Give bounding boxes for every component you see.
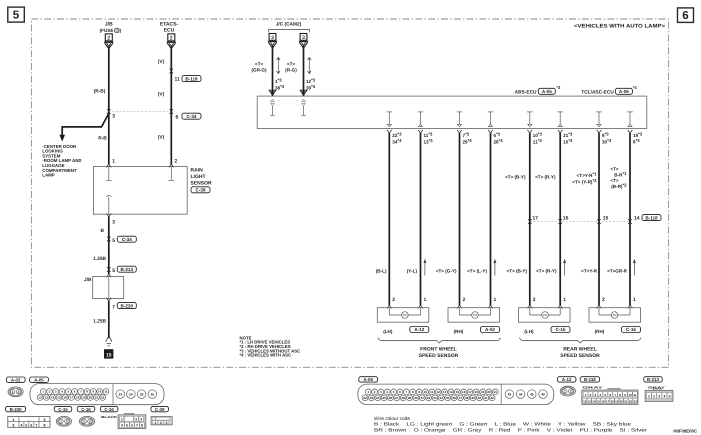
svg-text:BLACK: BLACK [101, 415, 118, 419]
svg-text:3: 3 [112, 114, 115, 120]
svg-text:H8F08E00C: H8F08E00C [673, 429, 697, 434]
svg-text:23: 23 [370, 396, 374, 400]
svg-text:35: 35 [446, 396, 450, 400]
svg-text:(V): (V) [158, 135, 165, 141]
svg-text:<T> (R-Y): <T> (R-Y) [535, 175, 556, 180]
svg-text:3: 3 [271, 35, 274, 41]
svg-text:C-16: C-16 [626, 327, 636, 332]
svg-text:13: 13 [443, 390, 447, 394]
svg-text:B-230: B-230 [121, 303, 134, 308]
svg-text:12: 12 [38, 396, 42, 400]
svg-text:1: 1 [494, 297, 497, 303]
svg-text:1: 1 [60, 420, 62, 424]
svg-text:2: 2 [89, 420, 91, 424]
svg-text:(LH): (LH) [383, 329, 393, 334]
svg-text:3: 3 [165, 421, 167, 425]
svg-text:10: 10 [628, 393, 632, 397]
svg-text:46: 46 [541, 392, 545, 396]
svg-text:19: 19 [481, 390, 485, 394]
svg-text:1: 1 [633, 297, 636, 303]
svg-text:21: 21 [95, 396, 99, 400]
svg-text:2: 2 [18, 390, 20, 394]
svg-text:SPEED SENSOR: SPEED SENSOR [560, 353, 600, 359]
svg-text:1.25B: 1.25B [93, 318, 106, 324]
svg-text:43: 43 [508, 392, 512, 396]
svg-text:<T> (R-Y): <T> (R-Y) [536, 268, 557, 273]
svg-text:LAMP: LAMP [42, 173, 55, 178]
svg-text:ABS-ECU: ABS-ECU [515, 90, 537, 96]
svg-text:1: 1 [112, 159, 115, 165]
svg-text:41: 41 [484, 396, 488, 400]
svg-text:(LH): (LH) [524, 329, 534, 334]
svg-text:19: 19 [82, 396, 86, 400]
svg-text:(R-B): (R-B) [94, 88, 106, 94]
svg-text:(V): (V) [158, 59, 165, 65]
svg-text:15: 15 [456, 390, 460, 394]
svg-text:A-12: A-12 [562, 377, 572, 382]
svg-text:18: 18 [76, 396, 80, 400]
svg-text:<T>: <T> [610, 167, 618, 172]
svg-text:8: 8 [44, 424, 46, 428]
svg-text:J/B: J/B [105, 21, 113, 27]
svg-text:4: 4 [663, 395, 665, 399]
svg-text:21: 21 [494, 390, 498, 394]
svg-text:6: 6 [682, 10, 688, 22]
svg-text:15: 15 [57, 396, 61, 400]
svg-text:1.25B: 1.25B [93, 256, 106, 262]
svg-text:13: 13 [115, 29, 119, 33]
svg-text:1: 1 [648, 395, 650, 399]
svg-text:15: 15 [603, 216, 609, 222]
svg-text:36: 36 [452, 396, 456, 400]
svg-text:<T>GR-R: <T>GR-R [607, 268, 628, 273]
svg-text:44: 44 [519, 392, 523, 396]
svg-text:B-213: B-213 [121, 267, 134, 272]
svg-text:1: 1 [83, 420, 85, 424]
svg-text:<T> (G-Y): <T> (G-Y) [436, 268, 457, 273]
svg-text:37: 37 [459, 396, 463, 400]
svg-text:42: 42 [491, 396, 495, 400]
svg-text:B : Black LG : Light green: B : Black LG : Light green G : Green L :… [374, 422, 631, 428]
svg-text:17: 17 [532, 216, 538, 222]
svg-text:<T>Y-R: <T>Y-R [581, 268, 598, 273]
svg-text:B-118: B-118 [584, 377, 596, 382]
svg-text:J/C (CAM2): J/C (CAM2) [276, 21, 302, 27]
svg-text:2: 2 [175, 159, 178, 165]
svg-text:(V): (V) [158, 91, 165, 97]
svg-text:14: 14 [449, 390, 453, 394]
svg-text:5: 5 [25, 424, 27, 428]
svg-text:2: 2 [66, 420, 68, 424]
svg-text:A-06: A-06 [363, 377, 373, 382]
svg-text:23: 23 [633, 400, 637, 404]
svg-text:19: 19 [615, 400, 619, 404]
svg-text:8: 8 [141, 424, 143, 428]
svg-text:38: 38 [465, 396, 469, 400]
svg-text:23: 23 [118, 392, 122, 396]
svg-text:6: 6 [30, 424, 32, 428]
svg-text:30: 30 [414, 396, 418, 400]
svg-text:18: 18 [611, 400, 615, 404]
svg-text:2: 2 [107, 35, 110, 41]
svg-text:24: 24 [129, 392, 133, 396]
svg-text:2: 2 [170, 35, 173, 41]
svg-text:20: 20 [487, 390, 491, 394]
svg-text:B-118: B-118 [645, 215, 658, 220]
svg-text:REAR WHEEL: REAR WHEEL [563, 346, 597, 352]
svg-text:2: 2 [44, 418, 46, 422]
svg-text:17: 17 [468, 390, 472, 394]
svg-text:Wire colour code: Wire colour code [374, 416, 410, 422]
svg-text:2: 2 [533, 297, 536, 303]
svg-text:C-34: C-34 [122, 237, 132, 242]
svg-text:(B-L): (B-L) [376, 268, 387, 273]
svg-text:B-213: B-213 [647, 377, 660, 382]
svg-text:(RH): (RH) [595, 329, 605, 334]
svg-text:27: 27 [395, 396, 399, 400]
svg-text:3: 3 [12, 424, 14, 428]
svg-text:A-02: A-02 [485, 327, 495, 332]
svg-text:J/B: J/B [84, 277, 92, 283]
svg-text:11: 11 [104, 390, 108, 394]
svg-text:28: 28 [401, 396, 405, 400]
svg-text:10: 10 [424, 390, 428, 394]
svg-text:A-06: A-06 [619, 89, 629, 94]
svg-text:16: 16 [563, 216, 569, 222]
svg-text:15: 15 [106, 353, 112, 359]
svg-text:3: 3 [140, 418, 142, 422]
svg-text:C-16: C-16 [81, 407, 91, 412]
svg-text:12: 12 [583, 400, 587, 404]
svg-text:39: 39 [471, 396, 475, 400]
svg-text:25: 25 [140, 392, 144, 396]
svg-text:(R-G): (R-G) [285, 67, 297, 72]
svg-text:11: 11 [175, 77, 181, 83]
svg-text:7: 7 [112, 305, 115, 311]
svg-text:34: 34 [440, 396, 444, 400]
svg-text:14: 14 [51, 396, 55, 400]
svg-text:C-34: C-34 [104, 407, 114, 412]
svg-text:C-15: C-15 [58, 407, 68, 412]
svg-text:3: 3 [112, 220, 115, 226]
svg-text:3: 3 [302, 35, 305, 41]
svg-text:RAIN: RAIN [191, 168, 204, 174]
svg-text:13: 13 [588, 400, 592, 404]
svg-text:6: 6 [131, 424, 133, 428]
svg-text:25: 25 [382, 396, 386, 400]
svg-text:<T> (L-Y): <T> (L-Y) [467, 268, 487, 273]
svg-text:4: 4 [121, 424, 123, 428]
svg-text:15: 15 [597, 400, 601, 404]
svg-text:16: 16 [462, 390, 466, 394]
svg-text:3: 3 [658, 395, 660, 399]
svg-text:20: 20 [620, 400, 624, 404]
svg-text:R-B: R-B [98, 135, 107, 141]
svg-text:*3: *3 [556, 85, 561, 90]
svg-text:C-34: C-34 [187, 114, 197, 119]
svg-text:(GR-G): (GR-G) [251, 67, 267, 72]
svg-text:SENSOR: SENSOR [191, 180, 213, 186]
svg-text:(RH): (RH) [454, 329, 464, 334]
svg-text:11: 11 [430, 390, 434, 394]
svg-text:29: 29 [408, 396, 412, 400]
svg-text:1: 1 [12, 418, 14, 422]
svg-text:45: 45 [530, 392, 534, 396]
svg-text:2: 2 [570, 389, 572, 393]
svg-text:14: 14 [634, 216, 640, 222]
svg-text:26: 26 [389, 396, 393, 400]
svg-text:16: 16 [64, 396, 68, 400]
svg-text:ECU: ECU [164, 27, 175, 33]
svg-text:*4: *4 [633, 85, 638, 90]
svg-text:<T>: <T> [287, 62, 295, 67]
svg-text:2: 2 [463, 297, 466, 303]
svg-text:(FUSE: (FUSE [100, 28, 114, 33]
svg-text:1: 1 [424, 297, 427, 303]
svg-text:C-39: C-39 [196, 188, 206, 193]
svg-text:5: 5 [112, 268, 115, 274]
svg-text:LIGHT: LIGHT [191, 174, 206, 180]
svg-text:14: 14 [592, 400, 596, 404]
svg-text:<T> (B-Y): <T> (B-Y) [505, 175, 526, 180]
svg-text:(Y-L): (Y-L) [407, 268, 418, 273]
svg-text:B: B [100, 228, 104, 234]
svg-text:26: 26 [151, 392, 155, 396]
svg-text:7: 7 [136, 424, 138, 428]
svg-text:33: 33 [433, 396, 437, 400]
svg-text:24: 24 [376, 396, 380, 400]
svg-text:2: 2 [392, 297, 395, 303]
svg-text:1: 1 [563, 297, 566, 303]
svg-text:2: 2 [160, 421, 162, 425]
svg-text:22: 22 [363, 396, 367, 400]
svg-text:2: 2 [135, 418, 137, 422]
svg-text:31: 31 [421, 396, 425, 400]
svg-text:<VEHICLES WITH AUTO LAMP>: <VEHICLES WITH AUTO LAMP> [574, 23, 665, 29]
svg-text:1: 1 [121, 418, 123, 422]
svg-text:FRONT WHEEL: FRONT WHEEL [420, 346, 457, 352]
svg-text:11: 11 [633, 393, 637, 397]
svg-text:A-12: A-12 [414, 327, 424, 332]
svg-text:16: 16 [601, 400, 605, 404]
svg-text:C-15: C-15 [556, 327, 566, 332]
svg-text:2: 2 [602, 297, 605, 303]
svg-text:*4 : VEHICLES WITH ASC: *4 : VEHICLES WITH ASC [240, 353, 292, 358]
svg-text:A-05: A-05 [542, 89, 552, 94]
svg-text:1: 1 [154, 421, 156, 425]
svg-text:13: 13 [45, 396, 49, 400]
svg-text:<T>: <T> [255, 62, 263, 67]
svg-text:GRAY: GRAY [583, 386, 603, 390]
svg-text:40: 40 [478, 396, 482, 400]
svg-text:1: 1 [564, 389, 566, 393]
svg-text:<T> (B-Y): <T> (B-Y) [507, 268, 528, 273]
svg-text:B-230: B-230 [10, 407, 23, 412]
svg-text:21: 21 [624, 400, 628, 404]
svg-text:<T>: <T> [610, 178, 618, 183]
svg-text:B-118: B-118 [185, 76, 198, 81]
svg-text:32: 32 [427, 396, 431, 400]
svg-text:2: 2 [653, 395, 655, 399]
svg-text:22: 22 [101, 396, 105, 400]
svg-text:A-02: A-02 [11, 377, 21, 382]
svg-text:7: 7 [35, 424, 37, 428]
svg-text:TCL/ASC-ECU: TCL/ASC-ECU [581, 90, 614, 96]
svg-text:20: 20 [89, 396, 93, 400]
svg-text:BR : Brown O : Orange GR: BR : Brown O : Orange GR : Grey R : Red … [374, 427, 648, 433]
svg-text:SPEED SENSOR: SPEED SENSOR [419, 353, 459, 359]
svg-text:10: 10 [98, 390, 102, 394]
svg-text:C-39: C-39 [155, 407, 165, 412]
svg-text:5: 5 [13, 10, 20, 22]
svg-text:5: 5 [112, 238, 115, 244]
svg-text:18: 18 [475, 390, 479, 394]
svg-text:22: 22 [629, 400, 633, 404]
svg-text:12: 12 [436, 390, 440, 394]
svg-text:5: 5 [126, 424, 128, 428]
svg-text:17: 17 [606, 400, 610, 404]
svg-text:A-05: A-05 [34, 377, 44, 382]
svg-text:1: 1 [12, 390, 14, 394]
svg-text:4: 4 [20, 424, 22, 428]
svg-text:6: 6 [176, 115, 179, 121]
svg-text:5: 5 [669, 395, 671, 399]
svg-text:17: 17 [70, 396, 74, 400]
